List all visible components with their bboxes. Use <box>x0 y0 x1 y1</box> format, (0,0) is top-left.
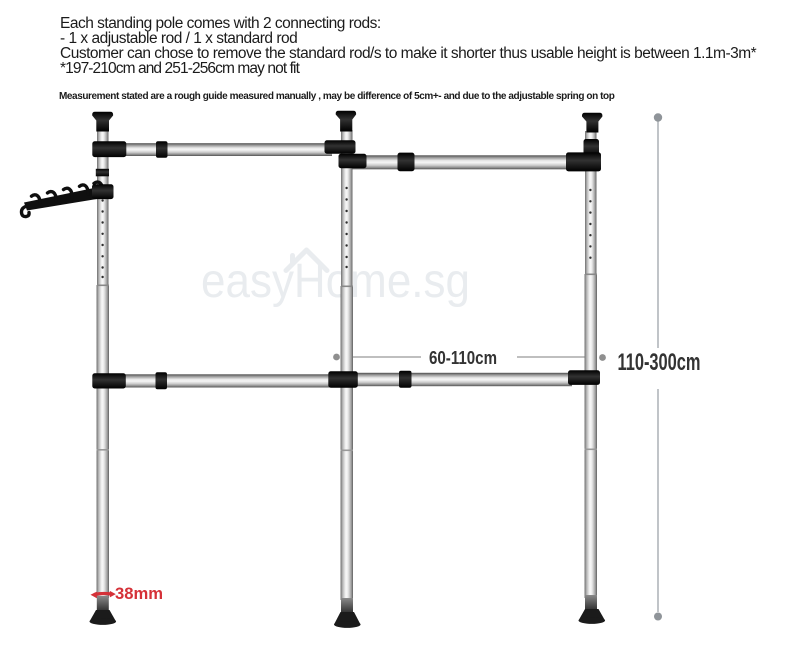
svg-text:38mm: 38mm <box>115 584 163 603</box>
svg-text:60-110cm: 60-110cm <box>429 348 497 368</box>
svg-text:110-300cm: 110-300cm <box>618 349 701 376</box>
svg-text:easyHome.sg: easyHome.sg <box>201 255 470 308</box>
